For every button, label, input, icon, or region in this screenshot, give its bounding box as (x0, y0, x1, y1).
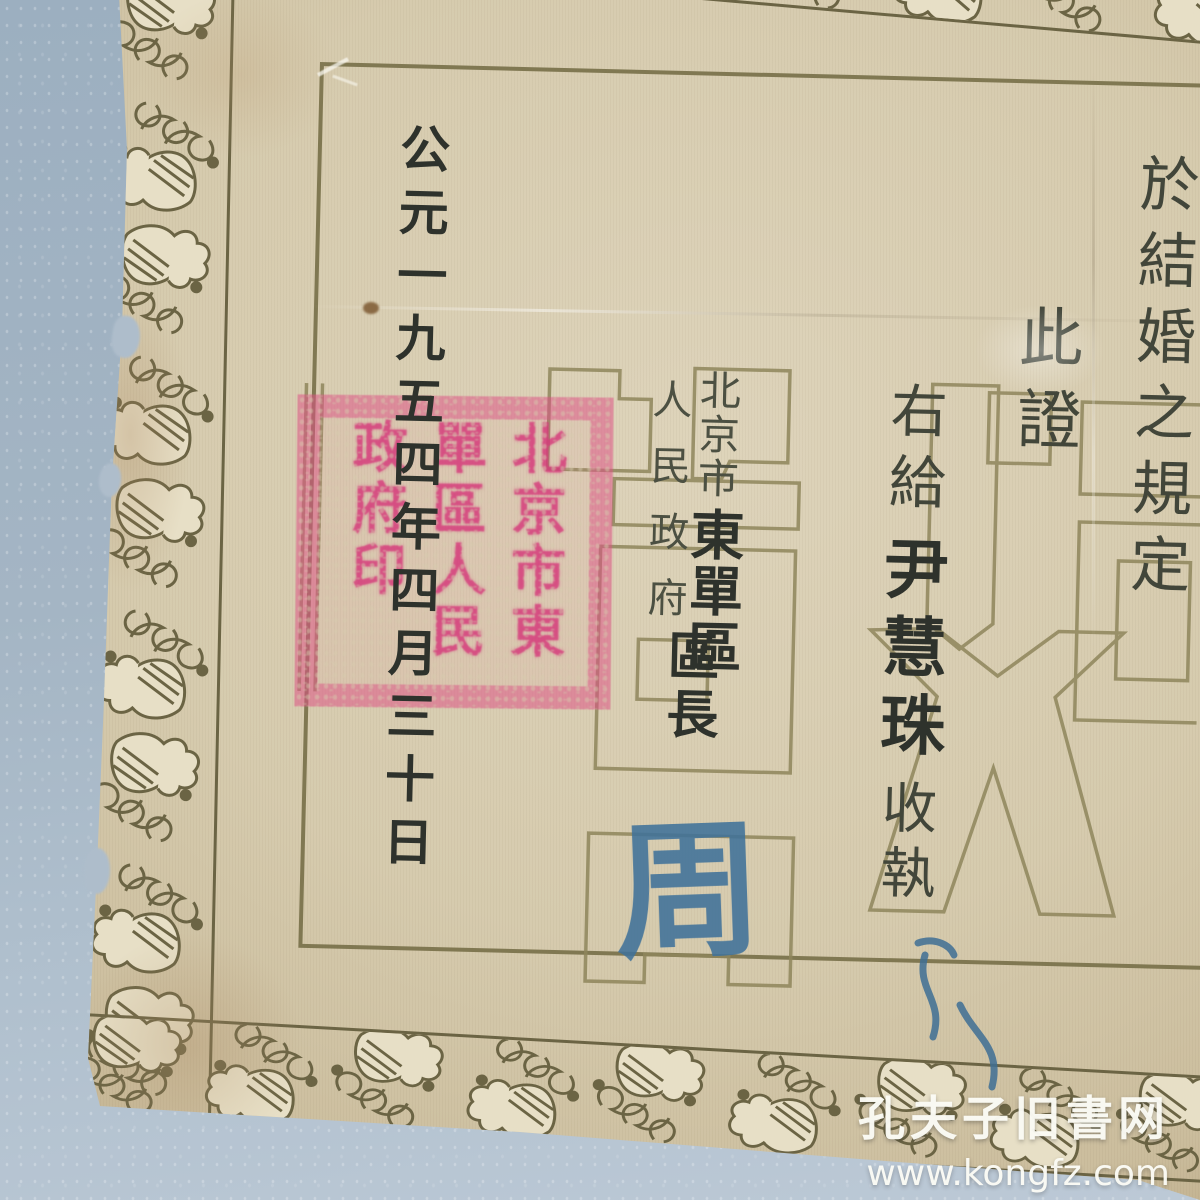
certificate-paper: 北京市東單區人民政府印 於結婚之規定 此證 右給尹慧珠收執 北京市東單區 人民政… (70, 0, 1200, 1200)
kongfz-site-url: www.kongfz.com (858, 1153, 1170, 1194)
signer-title: 區長 (649, 628, 727, 746)
clause-column: 於結婚之規定 (1111, 152, 1200, 610)
issued-to-prefix: 右給 (879, 380, 948, 524)
recipient-name: 尹慧珠 (868, 534, 950, 770)
authority-column-2: 人民政府 (634, 378, 698, 643)
district-chief-signature: 周 (610, 768, 765, 988)
kongfz-site-name: 孔夫子旧書网 (858, 1080, 1170, 1149)
seal-col-1: 北京市東 (500, 420, 568, 665)
this-certifies-column: 此證 (996, 303, 1092, 469)
issued-to-column: 右給尹慧珠收執 (855, 380, 962, 910)
issued-to-suffix: 收執 (870, 778, 937, 910)
official-red-seal: 北京市東單區人民政府印 (294, 394, 613, 709)
photo-scene: 北京市東單區人民政府印 於結婚之規定 此證 右給尹慧珠收執 北京市東單區 人民政… (0, 0, 1200, 1200)
kongfz-watermark: 孔夫子旧書网 www.kongfz.com (858, 1080, 1170, 1194)
seal-text: 北京市東單區人民政府印 (333, 418, 575, 686)
